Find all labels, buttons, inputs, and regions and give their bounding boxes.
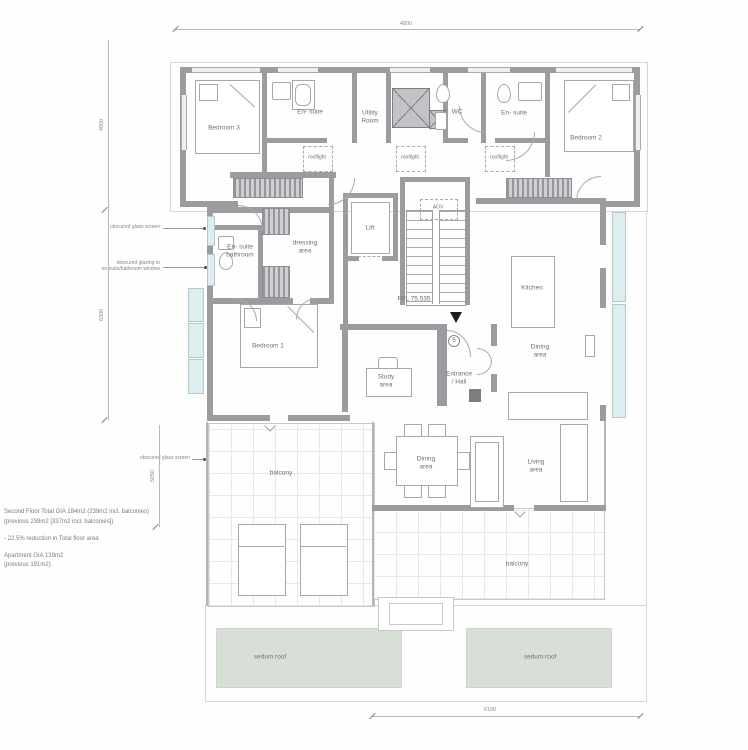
room-label-ensuite-1: En- suite (297, 108, 323, 116)
basin (272, 82, 291, 100)
structural-column (469, 389, 481, 402)
wall (491, 374, 497, 392)
stair-reference-circle: 5 (448, 335, 460, 347)
wall (600, 268, 606, 308)
floor-plan: 5 Bedroom 3 En- suite Utility Room WC En… (0, 0, 748, 750)
wall (352, 67, 357, 143)
dimension-tick (152, 524, 158, 530)
dimension-line-left-lower (108, 210, 109, 420)
glazed-screen-left (188, 323, 204, 358)
dimension-tick (101, 417, 107, 423)
kitchen-island (511, 256, 555, 328)
stair-bulkhead-inner (389, 603, 443, 625)
dining-chair (428, 424, 446, 437)
window (278, 67, 318, 73)
level-marker-icon (450, 312, 462, 323)
wall (437, 324, 447, 406)
wall (443, 138, 468, 143)
wall (545, 67, 550, 177)
door-swing (296, 298, 317, 319)
lift-overrun-shaft (392, 88, 430, 128)
stair-wall (400, 177, 470, 182)
wardrobe (506, 178, 572, 198)
glazed-screen-left (188, 359, 204, 394)
annotation-obscured-glass-screen-lower: obscured glass screen (112, 455, 190, 461)
sedum-roof-right-label: sedum roof (524, 653, 557, 661)
wall (600, 203, 606, 245)
room-label-ensuite-2: En- suite (501, 109, 527, 117)
room-label-bedroom2: Bedroom 2 (570, 134, 602, 142)
room-label-dressing: dressing area (293, 240, 318, 255)
rooflight-label: rooflight (308, 155, 326, 161)
pillow (612, 84, 630, 101)
leader-dot (204, 266, 207, 269)
sofa-cushion (475, 442, 499, 502)
dining-chair (428, 485, 446, 498)
room-label-dining-upper: Dining area (531, 344, 549, 359)
room-label-lift: Lift (366, 224, 375, 232)
rooflight-label: rooflight (401, 155, 419, 161)
sun-lounger (300, 524, 348, 596)
gia-note-line2: (previous 238m2 [337m2 incl. balconies]) (4, 519, 113, 525)
sedum-roof-left (216, 628, 402, 688)
window (390, 67, 430, 73)
balcony-left-screen (206, 422, 208, 606)
glazing-living-east (604, 421, 606, 505)
wall (602, 201, 640, 207)
dimension-value-top: 4800 (400, 21, 412, 27)
basin (435, 112, 447, 130)
sofa (560, 424, 588, 502)
dining-chair (457, 452, 470, 470)
wall (343, 261, 348, 324)
wardrobe (233, 178, 303, 198)
ffl-level-label: FFL 75.535 (397, 295, 430, 303)
obscured-glass-screen (207, 216, 215, 246)
room-label-living: Living area (528, 459, 545, 474)
room-label-kitchen: Kitchen (521, 284, 543, 292)
gia-note-line4: Apartment GIA 139m2 (4, 553, 63, 559)
entrance-door-leaf (477, 348, 492, 362)
window (181, 95, 187, 150)
room-label-bedroom3: Bedroom 3 (208, 124, 240, 132)
entrance-door-leaf (477, 361, 492, 375)
room-label-study: Study area (378, 374, 395, 389)
stair-ref-number: 5 (452, 338, 455, 344)
wardrobe (262, 208, 290, 235)
leader-line (163, 267, 205, 268)
toilet (497, 84, 511, 103)
wall (288, 415, 350, 421)
stair-wall (400, 177, 405, 305)
lift-shaft-wall (393, 193, 398, 261)
lift-door (353, 256, 385, 258)
obscured-glazing-window (207, 254, 215, 286)
room-label-entrance-hall: Entrance / Hall (446, 371, 472, 386)
wall (262, 67, 267, 177)
wall (342, 324, 348, 412)
glazing-right-upper (612, 212, 626, 302)
leader-dot (203, 227, 206, 230)
dimension-value-left-balcony: 5050 (150, 470, 156, 482)
sedum-roof-left-label: sedum roof (254, 653, 287, 661)
wall (386, 67, 391, 143)
glazing-right-lower (612, 304, 626, 418)
dining-chair (384, 452, 397, 470)
bathtub-inner (295, 84, 311, 106)
sofa (508, 392, 588, 420)
wall (340, 324, 447, 330)
dimension-tick (101, 207, 107, 213)
rooflight-label: rooflight (490, 155, 508, 161)
aov-label: AOV (433, 205, 444, 211)
dimension-tick (637, 713, 643, 719)
leader-line (163, 228, 203, 229)
sun-lounger-line (300, 546, 346, 547)
window (556, 67, 632, 73)
balcony-left-label: balcony (270, 469, 292, 477)
dimension-line-left-upper (108, 40, 109, 210)
dimension-value-left-lower: 6300 (99, 309, 105, 321)
pillow (199, 84, 218, 101)
dimension-line-top (175, 29, 640, 30)
room-label-ensuite-bathroom: En- suite bathroom (226, 244, 253, 259)
stair-stringer (432, 210, 440, 304)
glazed-screen-left (188, 288, 204, 322)
dimension-line-bottom (372, 716, 640, 717)
dimension-value-bottom: 6100 (484, 707, 496, 713)
gia-note-line3: - 22.5% reduction in Total floor area (4, 536, 99, 542)
lift-shaft-wall (343, 193, 348, 261)
dining-chair (404, 485, 422, 498)
radiator (585, 335, 595, 357)
room-label-bedroom1: Bedroom 1 (252, 342, 284, 350)
dimension-tick (637, 26, 643, 32)
wall (213, 415, 270, 421)
window (468, 67, 510, 73)
gia-note-line1: Second Floor Total GIA 184m2 (239m2 incl… (4, 509, 149, 515)
annotation-obscured-glazing: obscured glazing to en-suite/bathroom wi… (60, 260, 160, 272)
wardrobe (262, 266, 290, 298)
sun-lounger (238, 524, 286, 596)
balcony-right-tiles (373, 508, 605, 600)
room-label-utility: Utility Room (361, 110, 378, 125)
gia-note-line5: (previous 191m2) (4, 562, 51, 568)
window (635, 95, 641, 150)
sun-lounger-line (238, 546, 284, 547)
wall (262, 138, 327, 143)
room-label-wc: WC (452, 108, 463, 116)
dimension-value-left-upper: 4900 (99, 119, 105, 131)
lift-shaft-wall (343, 193, 398, 198)
balcony-divider-glass (372, 422, 374, 606)
balcony-left-tiles (208, 423, 375, 607)
window (192, 67, 260, 73)
wall (600, 405, 606, 421)
dining-chair (404, 424, 422, 437)
wall (443, 67, 448, 143)
dimension-line-left-balcony (159, 425, 160, 527)
wall (491, 324, 497, 346)
basin (518, 82, 542, 101)
balcony-right-label: balcony (506, 560, 528, 568)
toilet (436, 84, 450, 103)
wall (534, 505, 606, 511)
room-label-dining-table: Dining area (417, 456, 435, 471)
leader-dot (203, 458, 206, 461)
